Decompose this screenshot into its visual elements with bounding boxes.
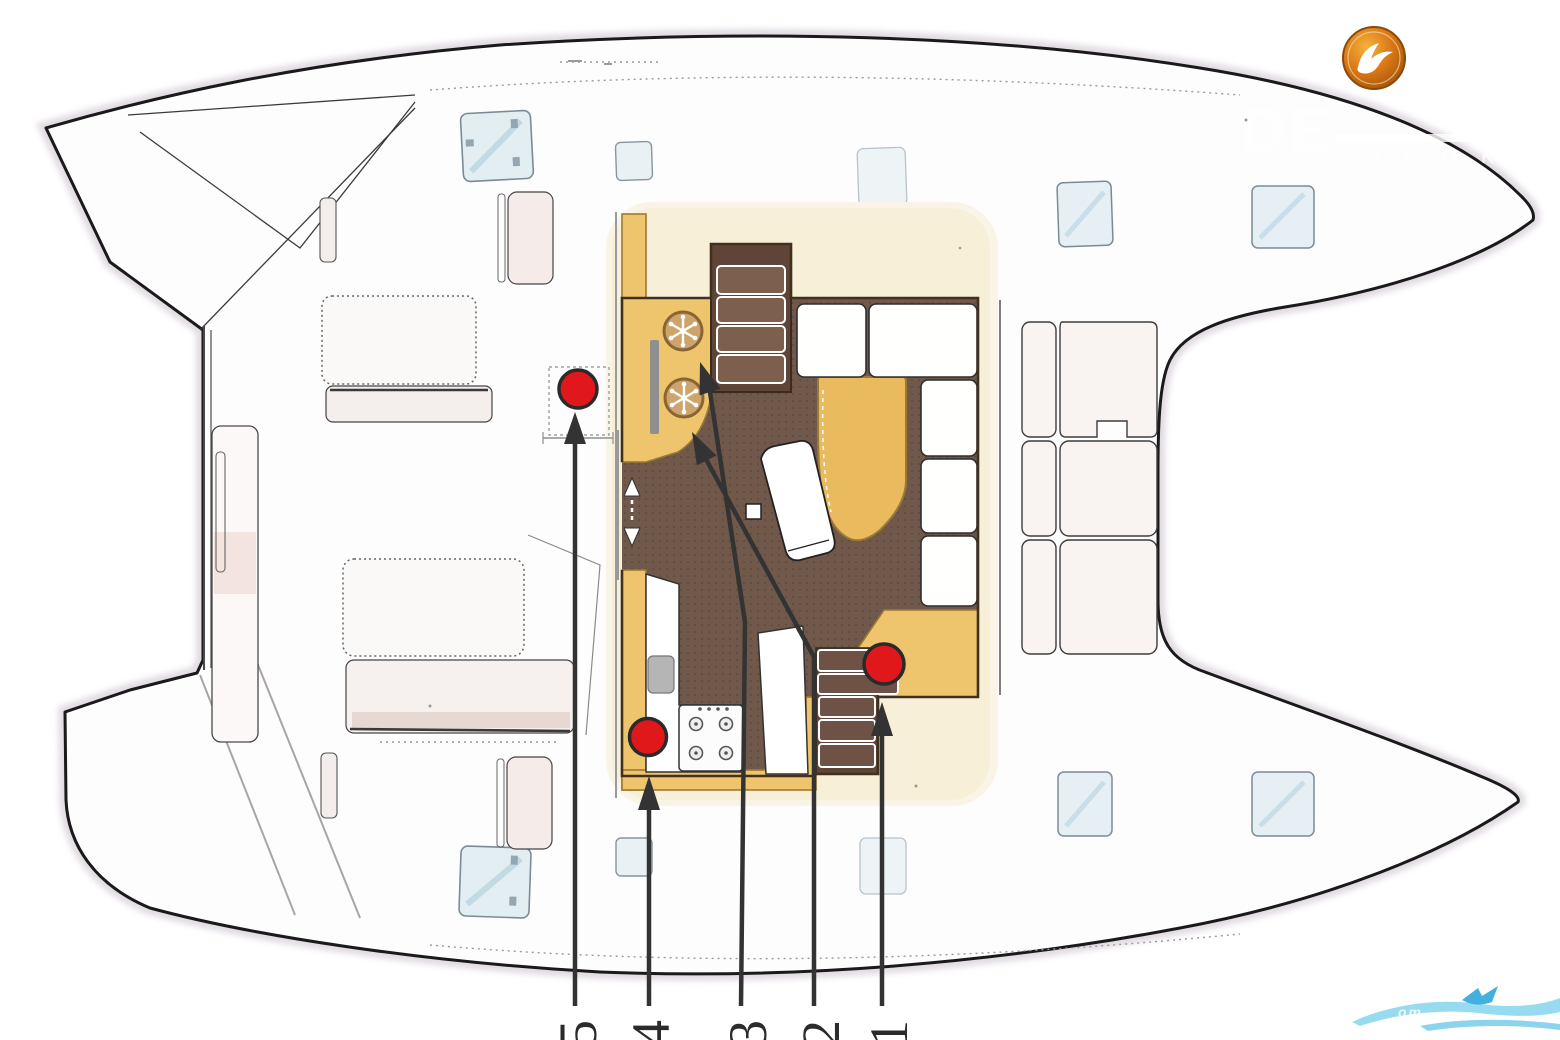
deck-hatch-small: [616, 838, 652, 876]
sofa-cushion: [797, 304, 866, 377]
callout-number: 4: [621, 1020, 681, 1040]
galley-island: [758, 626, 808, 774]
deck-hatch: [460, 110, 533, 182]
side-locker: [321, 753, 337, 818]
callout-number: 2: [791, 1020, 851, 1040]
coachroof-hatch-faint: [857, 147, 907, 207]
cockpit-cushion: [1060, 540, 1157, 654]
coachroof-hatch: [1252, 772, 1314, 836]
bottom-watermark: om: [1352, 986, 1560, 1031]
saloon-table: [818, 377, 906, 540]
cabin-panel-port: [322, 296, 492, 422]
cockpit-cushion: [1022, 322, 1056, 437]
snowflake-icon: [665, 379, 703, 417]
callout-number: 5: [548, 1020, 608, 1040]
deck-hatch-small: [615, 141, 652, 180]
stove: [679, 705, 743, 771]
stairs-forward: [711, 244, 791, 392]
watermark-rule: [1336, 134, 1560, 142]
cockpit-cushion: [1022, 441, 1056, 536]
watermark-bottom-text: om: [1398, 1004, 1423, 1020]
watermark-initials: DE: [1240, 94, 1335, 166]
forward-cabinet: [622, 214, 646, 298]
wave-swoosh-icon: [1420, 1020, 1560, 1031]
sofa-cushion: [869, 304, 977, 377]
sofa-cushion: [921, 459, 977, 533]
deck-plan-figure: 5 4 3 2 1 DE BROKER om: [0, 0, 1560, 1040]
cockpit-cushion: [1060, 322, 1157, 437]
salon: [606, 202, 1000, 806]
red-marker-galley: [630, 719, 667, 756]
galley-side-cabinet: [622, 570, 646, 790]
snowflake-icon: [664, 312, 702, 350]
bow-platform: [212, 426, 258, 742]
cockpit-seating: [1022, 322, 1157, 654]
galley-sink: [648, 656, 674, 693]
callout-numbers: 5 4 3 2 1: [548, 1020, 919, 1040]
red-marker-mast: [559, 370, 597, 408]
wave-bird-icon: [1462, 986, 1498, 1005]
coachroof-hatch: [1252, 186, 1314, 248]
side-locker: [320, 198, 336, 262]
coachroof-hatch: [1058, 772, 1112, 836]
counter-window-strip: [650, 340, 659, 434]
sofa-cushion: [921, 380, 977, 456]
sofa-cushion: [921, 536, 977, 606]
mast-post: [746, 504, 761, 519]
red-marker-stairs: [864, 644, 904, 684]
cockpit-cushion: [1022, 540, 1056, 654]
broker-logo: [1343, 27, 1405, 89]
callout-number: 1: [859, 1020, 919, 1040]
watermark-subtext: BROKER: [1368, 147, 1560, 168]
cockpit-cushion: [1060, 441, 1157, 536]
deck-hatch: [459, 846, 531, 918]
callout-number: 3: [718, 1020, 778, 1040]
coachroof-hatch: [1057, 181, 1113, 247]
